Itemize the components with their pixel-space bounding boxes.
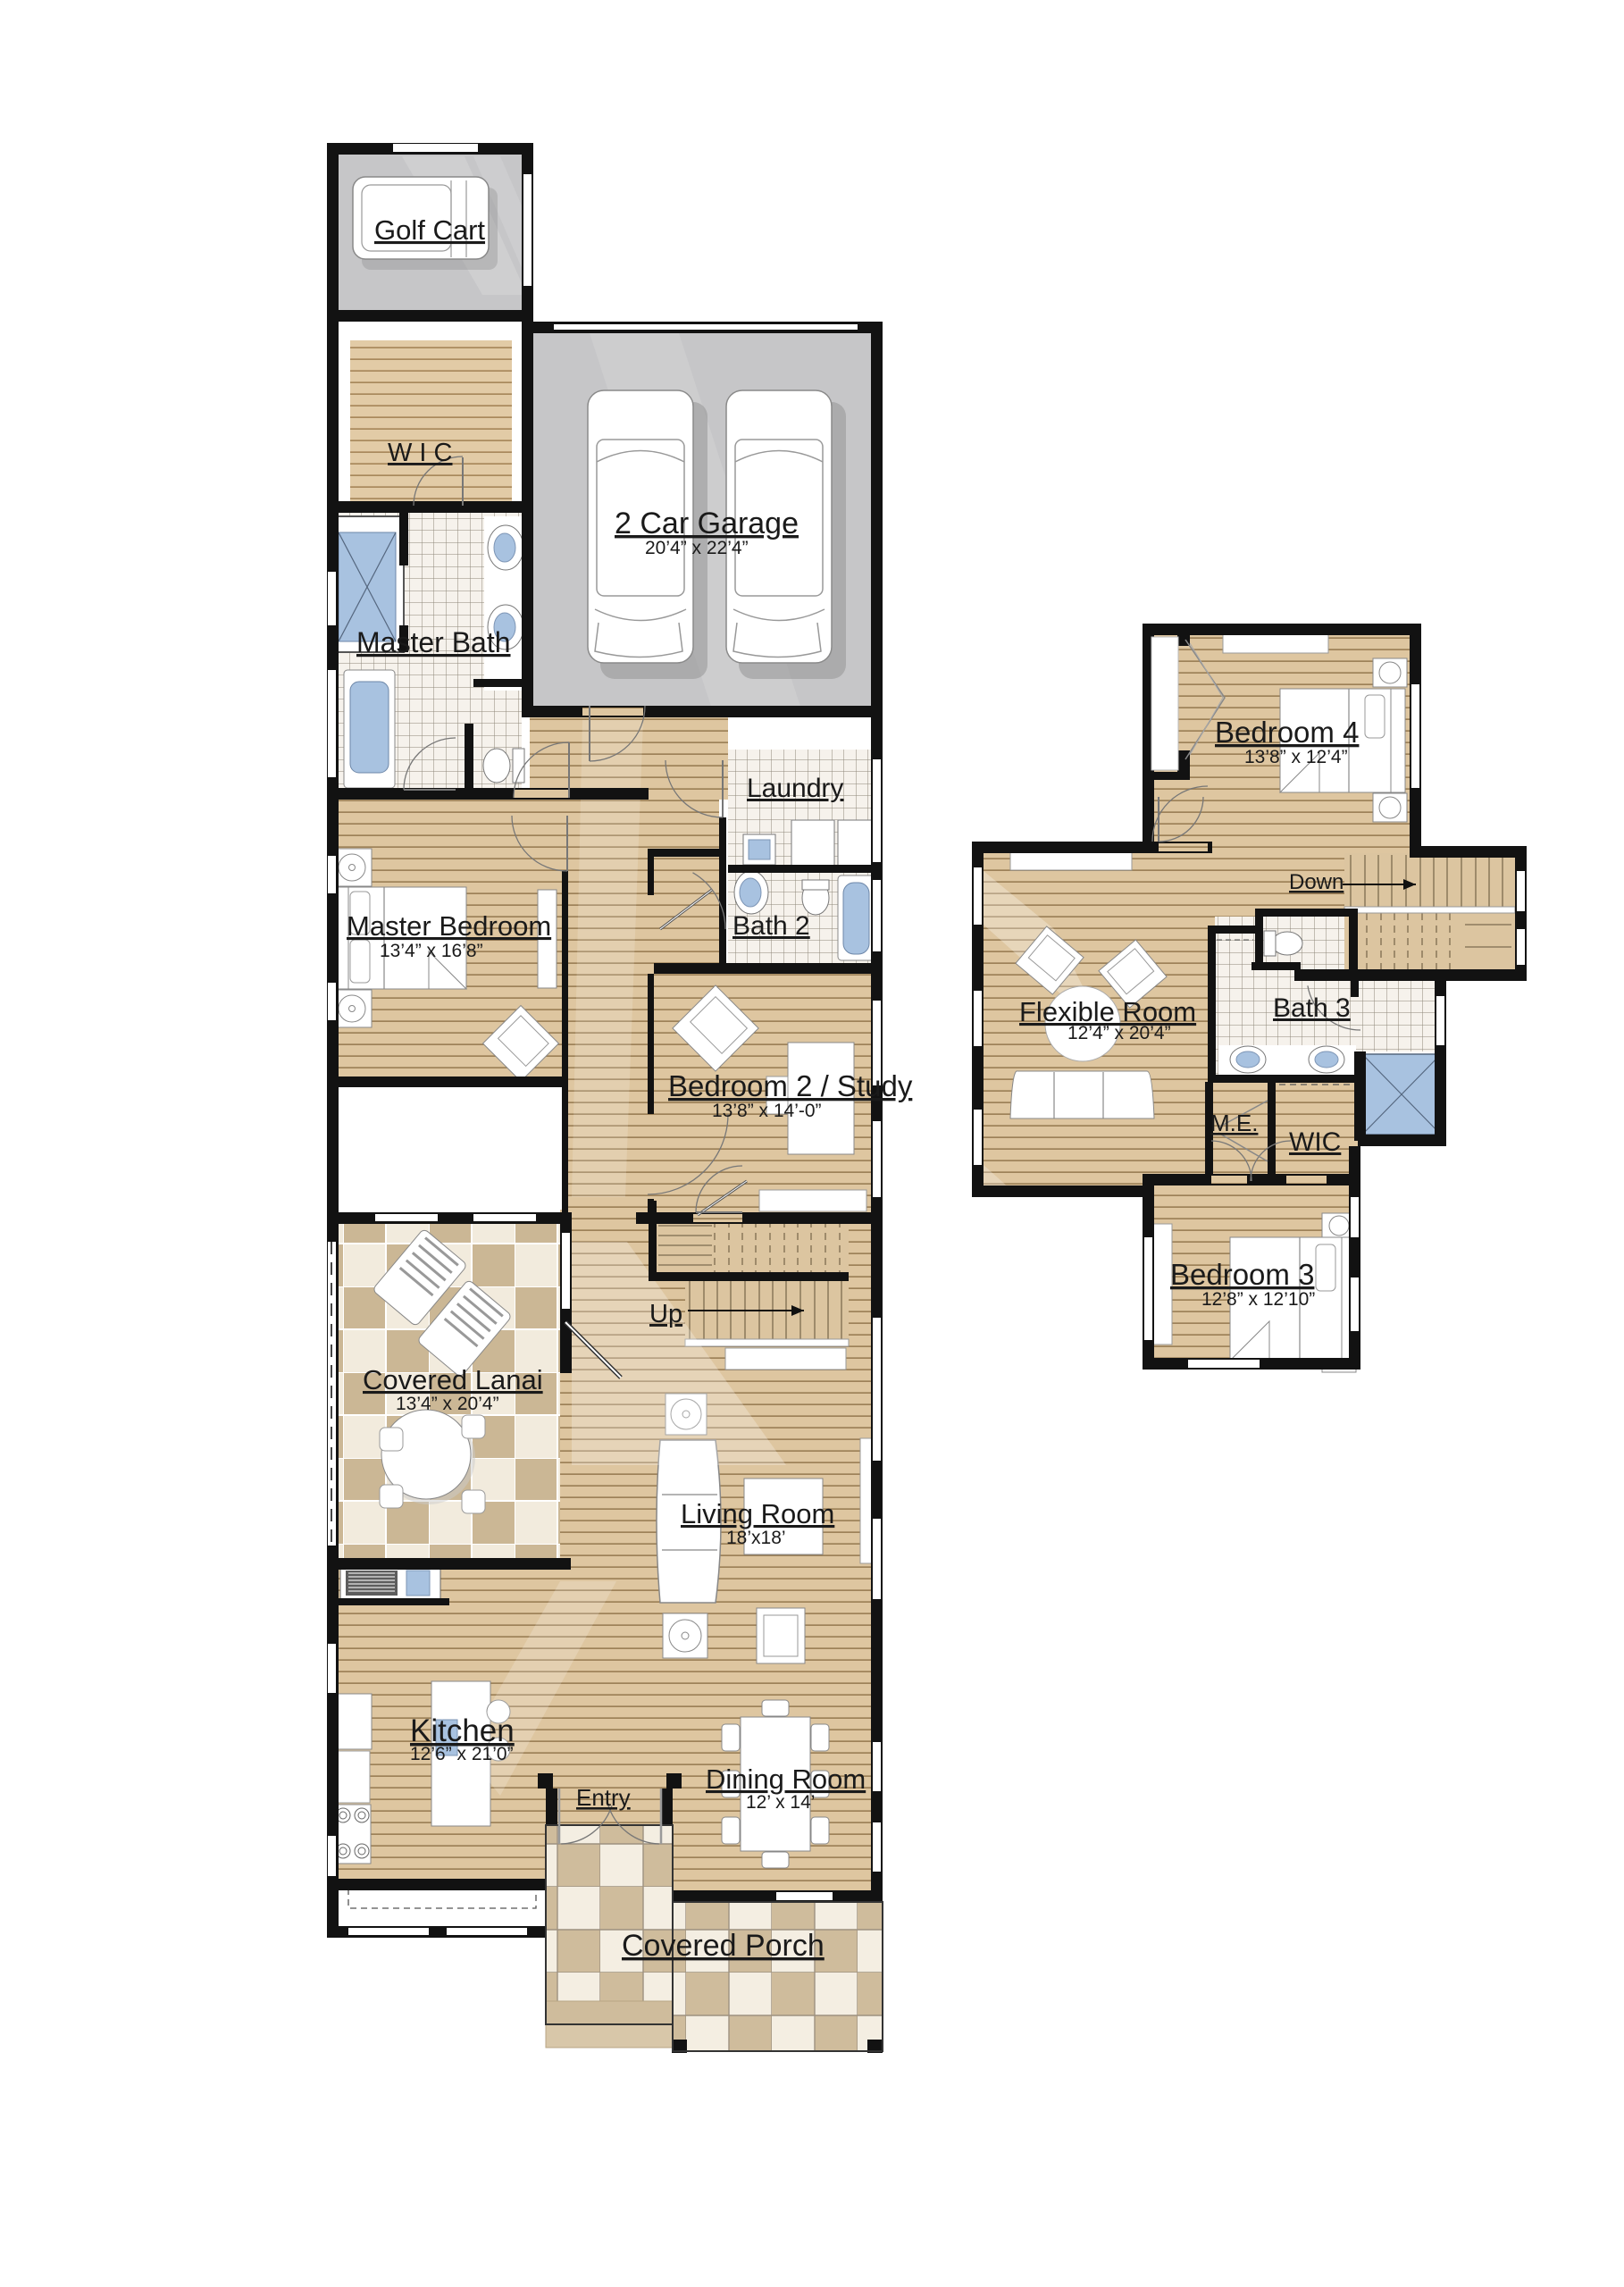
svg-text:W I C: W I C	[388, 439, 453, 467]
svg-text:Covered Porch: Covered Porch	[622, 1929, 825, 1963]
svg-text:12’4” x 20’4”: 12’4” x 20’4”	[1067, 1023, 1171, 1043]
svg-text:Bath 3: Bath 3	[1273, 993, 1351, 1023]
svg-text:M.E.: M.E.	[1210, 1110, 1258, 1136]
svg-text:12’6” x 21’0”: 12’6” x 21’0”	[410, 1744, 514, 1764]
svg-text:Golf Cart: Golf Cart	[374, 214, 485, 246]
svg-text:12’ x 14’: 12’ x 14’	[746, 1792, 815, 1813]
svg-text:13’4” x 16’8”: 13’4” x 16’8”	[380, 941, 483, 961]
svg-text:Bath 2: Bath 2	[732, 911, 810, 941]
svg-text:12’8” x 12’10”: 12’8” x 12’10”	[1201, 1289, 1315, 1310]
svg-text:Laundry: Laundry	[747, 774, 843, 803]
svg-text:2 Car Garage: 2 Car Garage	[615, 507, 799, 540]
svg-text:Up: Up	[649, 1300, 682, 1328]
svg-text:Bedroom 3: Bedroom 3	[1170, 1258, 1314, 1291]
svg-text:13’8” x 12’4”: 13’8” x 12’4”	[1244, 747, 1348, 767]
svg-text:Entry: Entry	[576, 1784, 631, 1811]
svg-text:Bedroom 4: Bedroom 4	[1215, 716, 1359, 749]
svg-text:Master Bath: Master Bath	[356, 626, 511, 658]
svg-text:Dining Room: Dining Room	[706, 1763, 866, 1795]
svg-text:Covered Lanai: Covered Lanai	[363, 1364, 543, 1395]
svg-text:13’4” x 20’4”: 13’4” x 20’4”	[396, 1394, 499, 1414]
svg-text:13’8” x 14’-0”: 13’8” x 14’-0”	[712, 1101, 822, 1121]
svg-text:Down: Down	[1289, 870, 1344, 894]
svg-text:WIC: WIC	[1289, 1127, 1341, 1157]
svg-text:18’x18’: 18’x18’	[726, 1528, 786, 1548]
svg-text:Bedroom 2 / Study: Bedroom 2 / Study	[668, 1069, 913, 1102]
svg-text:Living Room: Living Room	[681, 1498, 834, 1529]
svg-text:20’4” x 22’4”: 20’4” x 22’4”	[645, 538, 749, 558]
svg-text:Master Bedroom: Master Bedroom	[347, 910, 551, 942]
